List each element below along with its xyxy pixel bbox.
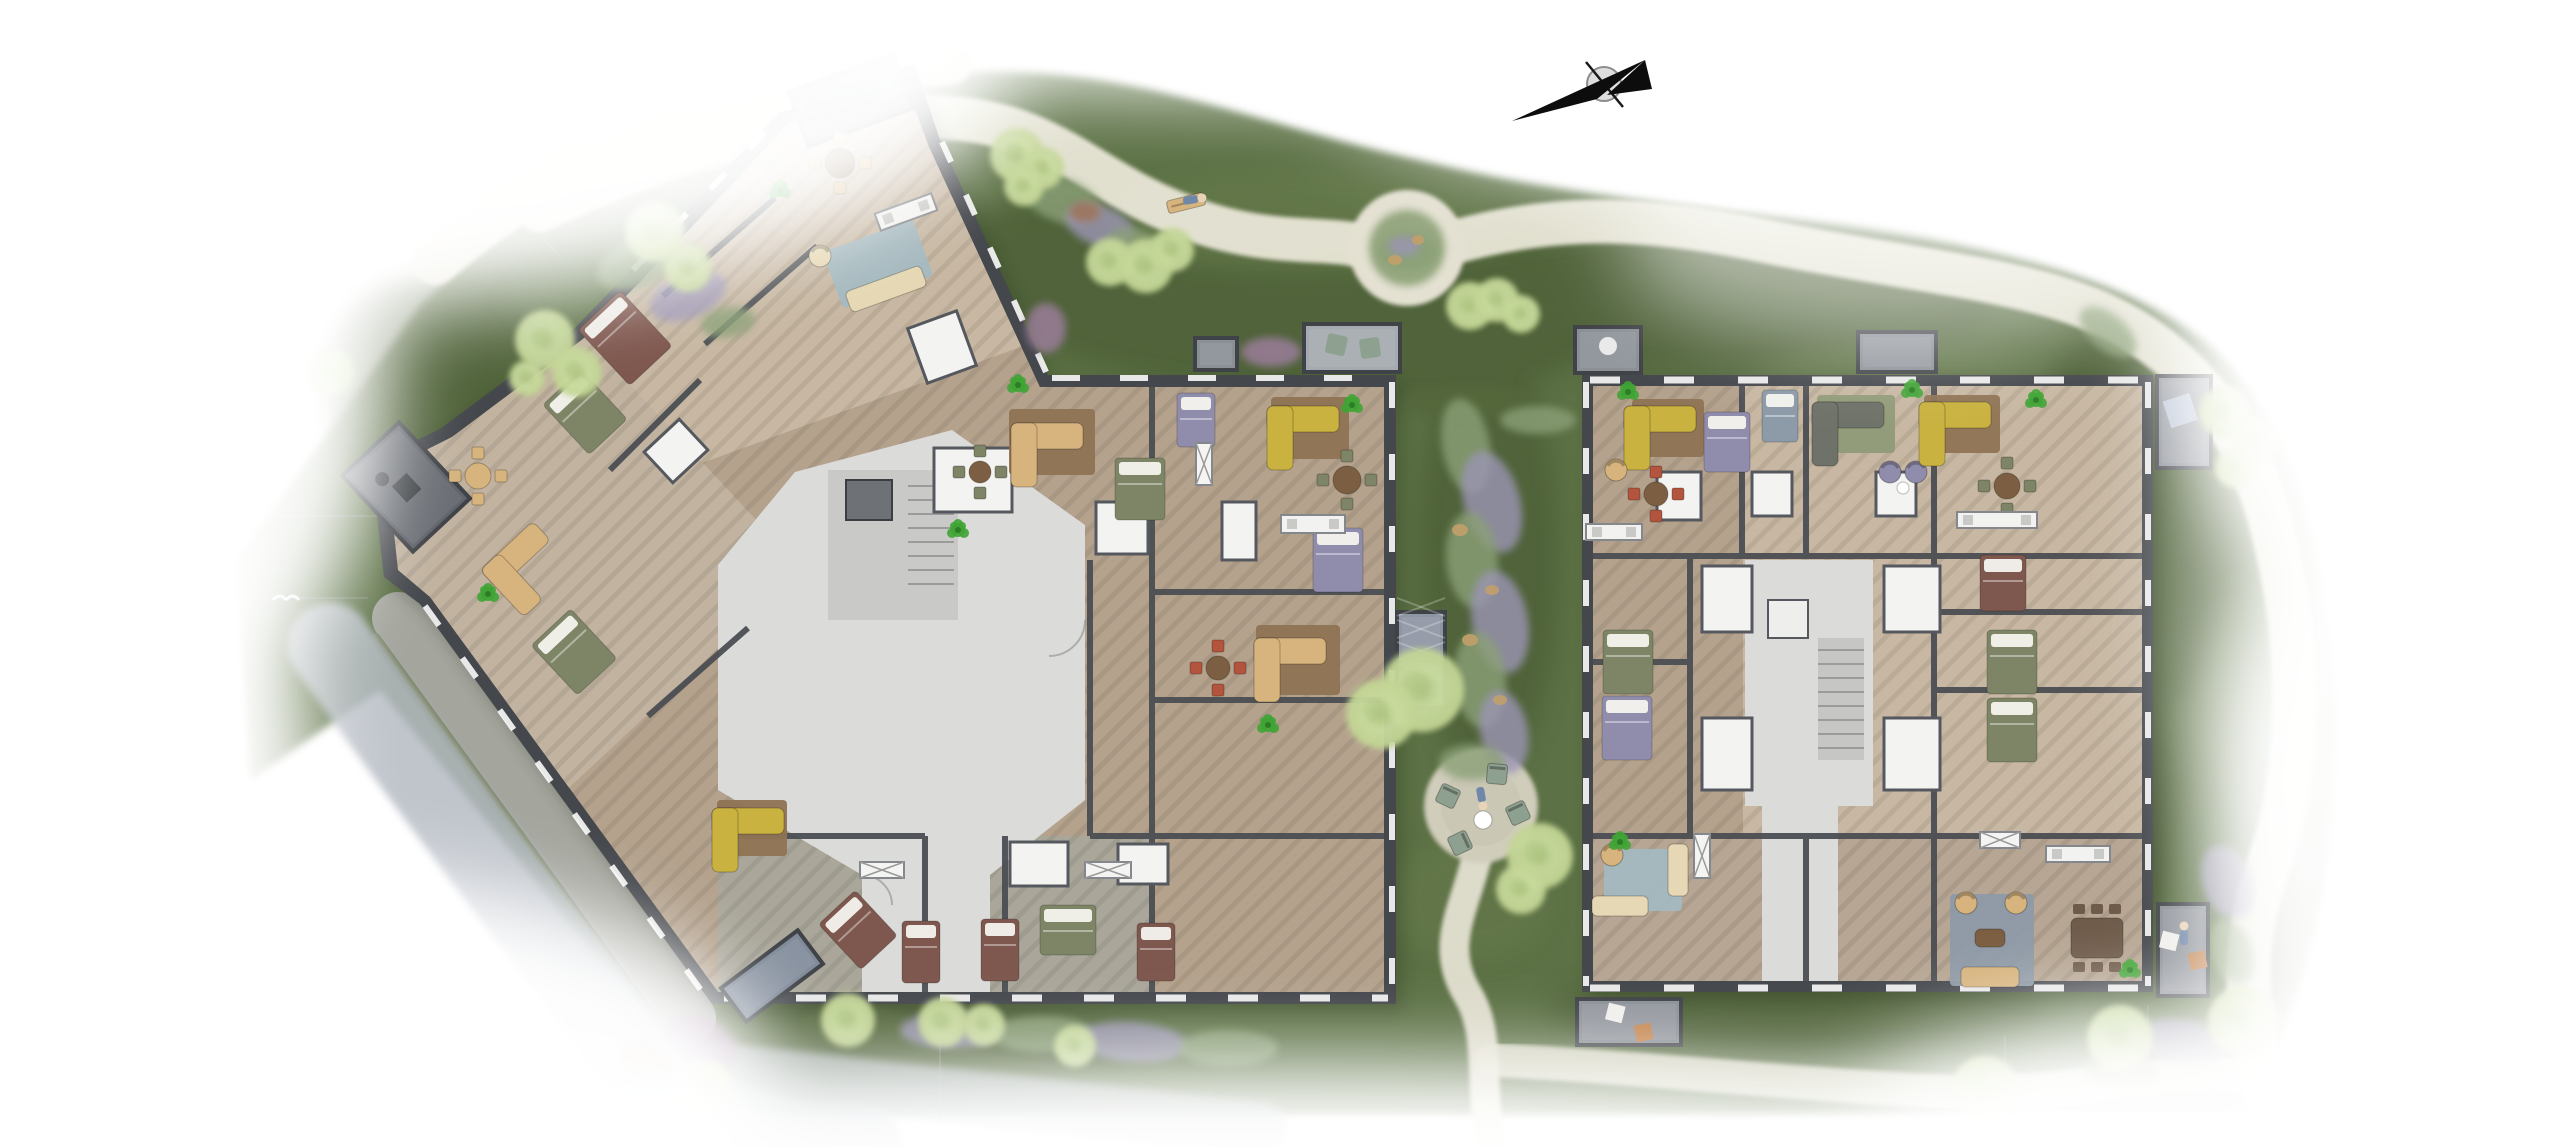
stepping-stone bbox=[1412, 235, 1424, 245]
wardrobe bbox=[1694, 834, 1710, 878]
sofa bbox=[1668, 844, 1688, 896]
wardrobe bbox=[1085, 862, 1131, 878]
armchair bbox=[1879, 461, 1901, 483]
sofa bbox=[1592, 896, 1648, 916]
bed bbox=[1987, 698, 2037, 762]
table bbox=[1975, 929, 2005, 947]
bed bbox=[1980, 555, 2026, 611]
elevator bbox=[846, 480, 892, 520]
armchair bbox=[1605, 459, 1627, 481]
bed bbox=[1704, 412, 1750, 472]
dining-table bbox=[1474, 811, 1492, 829]
armchair bbox=[809, 245, 831, 267]
stepping-stone bbox=[1388, 255, 1402, 265]
tree bbox=[918, 997, 968, 1047]
balcony-terrace bbox=[2158, 904, 2208, 996]
bed bbox=[1762, 390, 1798, 442]
tree bbox=[1054, 1025, 1096, 1067]
balcony-terrace bbox=[1577, 999, 1681, 1045]
bed bbox=[1603, 630, 1653, 694]
site-plan-stage bbox=[0, 0, 2560, 1147]
bed bbox=[981, 919, 1019, 981]
tree bbox=[509, 360, 545, 396]
bed bbox=[1987, 630, 2037, 694]
stepping-stone bbox=[1485, 585, 1499, 595]
bed bbox=[902, 921, 940, 983]
bed bbox=[1137, 923, 1175, 981]
tree bbox=[1502, 295, 1540, 333]
wardrobe bbox=[1980, 832, 2020, 848]
shrub-patch bbox=[1241, 337, 1301, 367]
tree bbox=[963, 1004, 1005, 1046]
stepping-stone bbox=[1452, 524, 1468, 536]
bed bbox=[1040, 905, 1096, 955]
shrub-patch bbox=[1026, 303, 1066, 353]
right-stairs bbox=[1818, 638, 1864, 760]
kitchen-counter bbox=[1957, 512, 2037, 528]
shrub-patch bbox=[1069, 202, 1101, 222]
tree bbox=[1346, 679, 1416, 749]
right-elevator bbox=[1768, 600, 1808, 638]
kitchen-counter bbox=[1586, 524, 1642, 540]
bed bbox=[1313, 528, 1363, 592]
patio-chair bbox=[1486, 763, 1508, 785]
tree bbox=[552, 347, 602, 397]
armchair bbox=[2005, 892, 2027, 914]
armchair bbox=[1955, 892, 1977, 914]
shrub-patch bbox=[1500, 406, 1576, 434]
kitchen-counter bbox=[1281, 515, 1345, 533]
person-figure bbox=[2180, 922, 2189, 946]
wardrobe bbox=[1196, 443, 1212, 485]
balcony-terrace bbox=[1575, 327, 1641, 373]
kitchen-counter bbox=[2046, 846, 2110, 862]
tree bbox=[1496, 864, 1546, 914]
balcony-terrace bbox=[1195, 338, 1237, 370]
bed bbox=[1602, 696, 1652, 760]
balcony-terrace bbox=[1304, 324, 1400, 372]
sofa bbox=[1961, 967, 2019, 987]
site-plan-canvas bbox=[0, 0, 2560, 1147]
stepping-stone bbox=[1493, 695, 1507, 705]
tree bbox=[1150, 228, 1194, 272]
dining-table bbox=[1897, 482, 1909, 494]
bed bbox=[1115, 458, 1165, 520]
stepping-stone bbox=[1462, 634, 1478, 646]
tree bbox=[821, 993, 875, 1047]
wardrobe bbox=[860, 862, 904, 878]
bed bbox=[1177, 393, 1215, 447]
tree bbox=[1004, 166, 1044, 206]
